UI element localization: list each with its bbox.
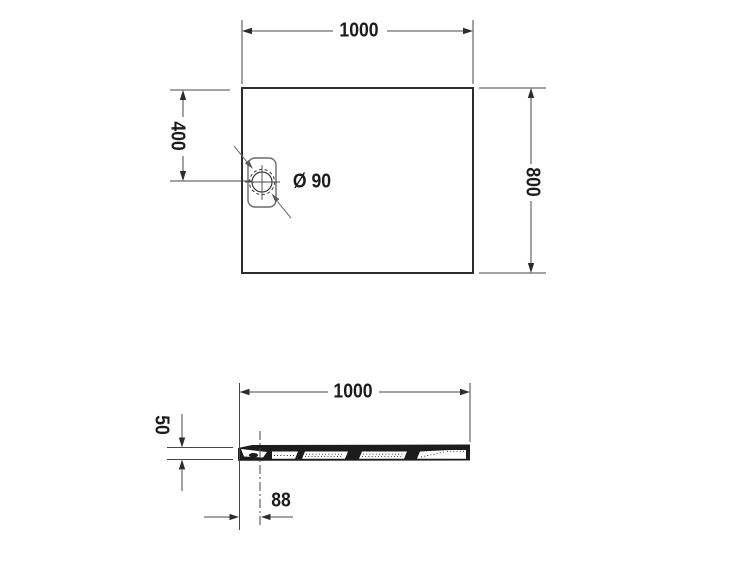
side-view-thickness-label: 50 (150, 415, 173, 435)
dimension-thickness-50 (167, 414, 233, 491)
side-view-drain-offset-label: 88 (271, 490, 291, 513)
profile-cutout (272, 452, 298, 459)
top-view-drain-offset-label: 400 (166, 121, 189, 150)
arrowhead-up-icon (179, 460, 185, 470)
tray-profile-section (238, 445, 470, 461)
arrowhead-right-icon (230, 514, 240, 520)
side-view-width-label: 1000 (333, 381, 372, 404)
arrowhead-down-icon (179, 438, 185, 448)
profile-cutout (359, 452, 407, 459)
profile-cutout (302, 452, 348, 459)
arrowhead-right-icon (463, 28, 473, 34)
arrowhead-down-icon (180, 171, 186, 181)
profile-cutout (417, 450, 466, 459)
side-view (167, 383, 470, 530)
arrowhead-up-icon (180, 90, 186, 100)
arrowhead-right-icon (460, 389, 470, 395)
dimension-drain-offset-88 (204, 514, 293, 520)
top-view (170, 20, 546, 273)
drain-diameter-label: Ø 90 (293, 171, 331, 194)
arrowhead-up-icon (528, 88, 534, 98)
arrowhead-left-icon (240, 389, 250, 395)
top-view-height-label: 800 (521, 167, 544, 196)
top-view-width-label: 1000 (339, 20, 378, 43)
arrowhead-down-icon (528, 263, 534, 273)
technical-drawing-canvas: 1000 400 800 Ø 90 1000 50 88 (0, 0, 750, 563)
arrowhead-left-icon (261, 514, 271, 520)
arrowhead-left-icon (242, 28, 252, 34)
drawing-linework (0, 0, 750, 563)
profile-drain-trap (249, 453, 258, 457)
